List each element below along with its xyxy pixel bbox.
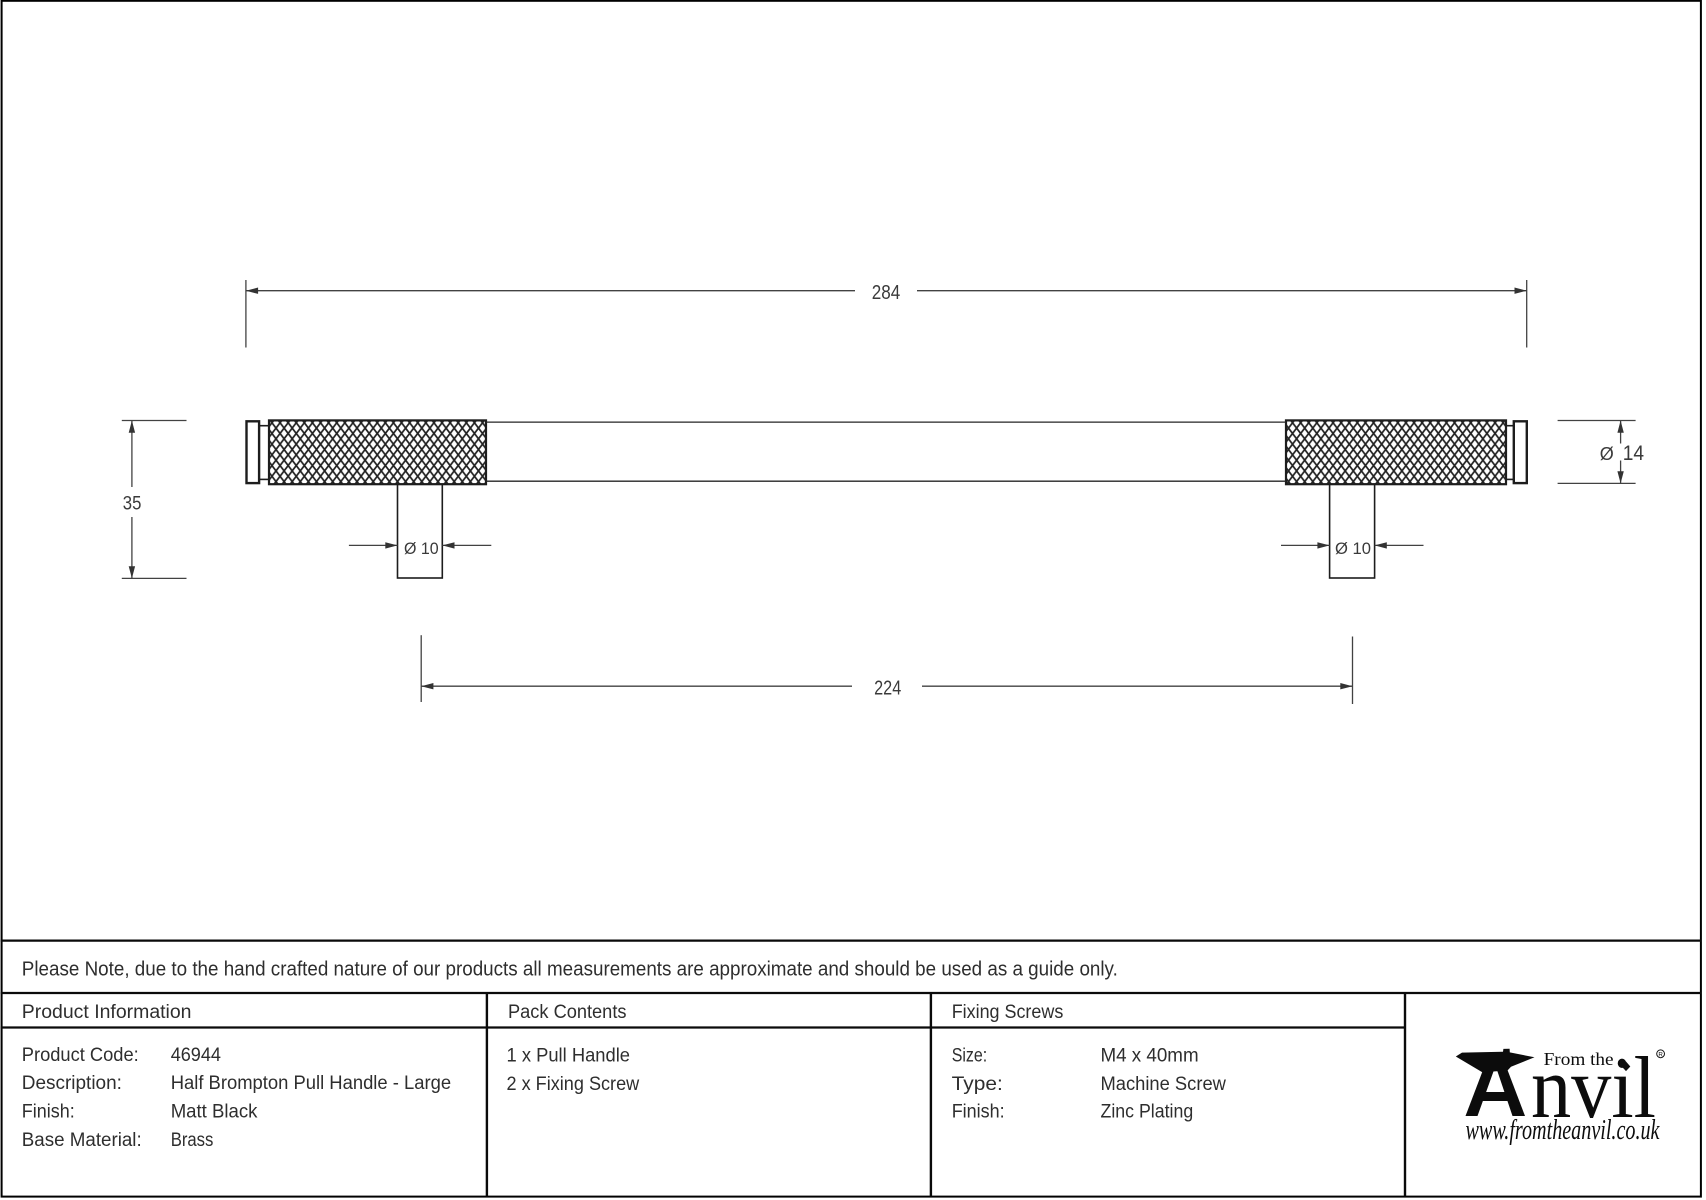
svg-text:M4 x 40mm: M4 x 40mm <box>1101 1046 1199 1067</box>
svg-text:Finish:: Finish: <box>22 1102 75 1123</box>
svg-text:R: R <box>1658 1051 1663 1058</box>
svg-text:Brass: Brass <box>171 1130 214 1151</box>
svg-text:Ø 10: Ø 10 <box>404 540 439 558</box>
svg-text:1 x Pull Handle: 1 x Pull Handle <box>507 1046 631 1067</box>
svg-text:224: 224 <box>874 677 901 699</box>
svg-text:Ø: Ø <box>1600 444 1614 464</box>
svg-text:Fixing Screws: Fixing Screws <box>952 1002 1064 1023</box>
svg-text:Product Information: Product Information <box>22 1002 192 1023</box>
svg-text:35: 35 <box>123 492 142 514</box>
svg-text:Half Brompton Pull Handle - La: Half Brompton Pull Handle - Large <box>171 1073 451 1094</box>
svg-text:Pack Contents: Pack Contents <box>508 1002 627 1023</box>
svg-text:Size:: Size: <box>952 1046 988 1067</box>
svg-text:Base Material:: Base Material: <box>22 1130 142 1151</box>
svg-text:Type:: Type: <box>952 1074 1003 1095</box>
svg-text:Matt Black: Matt Black <box>171 1102 258 1123</box>
svg-text:www.fromtheanvil.co.uk: www.fromtheanvil.co.uk <box>1466 1114 1661 1146</box>
svg-text:46944: 46944 <box>171 1045 222 1066</box>
svg-text:Product Code:: Product Code: <box>22 1045 139 1066</box>
svg-text:Machine Screw: Machine Screw <box>1101 1074 1226 1095</box>
svg-text:Description:: Description: <box>22 1073 122 1094</box>
svg-text:14: 14 <box>1623 442 1645 465</box>
svg-text:284: 284 <box>872 282 901 304</box>
svg-text:Ø 10: Ø 10 <box>1335 540 1371 558</box>
svg-text:2 x Fixing Screw: 2 x Fixing Screw <box>507 1074 640 1095</box>
svg-text:Please Note, due to the hand c: Please Note, due to the hand crafted nat… <box>22 959 1118 981</box>
svg-text:Zinc Plating: Zinc Plating <box>1101 1102 1194 1123</box>
svg-text:Finish:: Finish: <box>952 1102 1005 1123</box>
